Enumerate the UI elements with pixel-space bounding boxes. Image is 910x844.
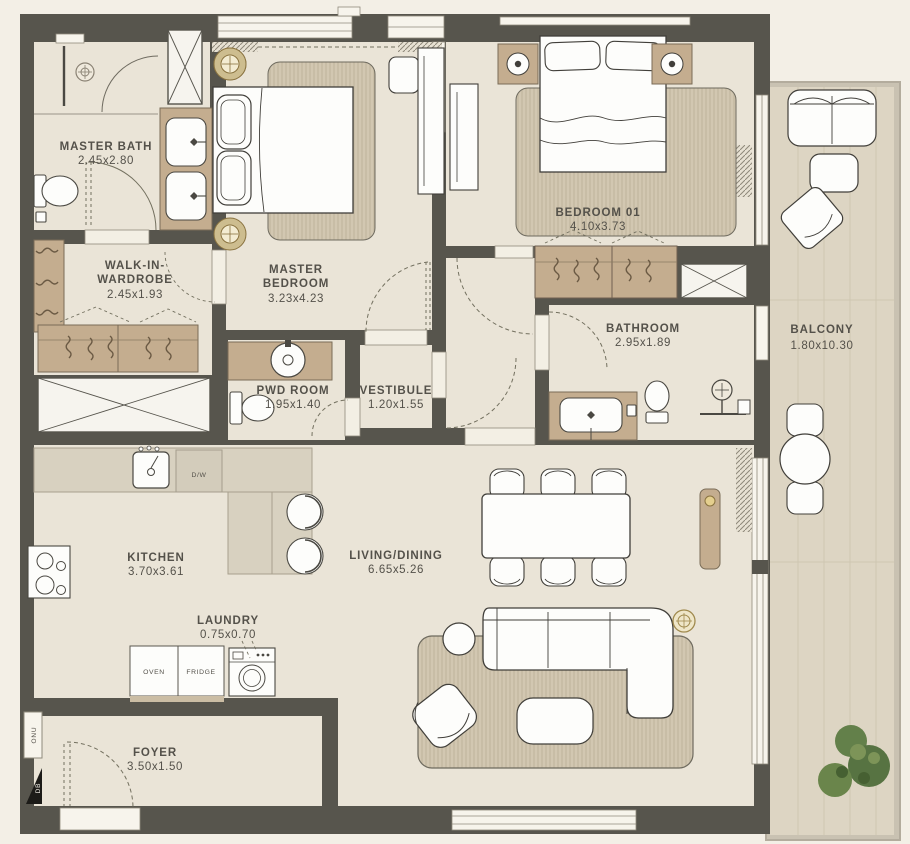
dining-table	[482, 494, 630, 558]
floor-plan-svg: D/W OVEN FRIDGE	[0, 0, 910, 844]
bistro-table-icon	[780, 434, 830, 484]
pwd-door-threshold	[345, 398, 360, 436]
sink-icon	[166, 172, 206, 220]
dining-set	[482, 469, 630, 586]
label-walk-in-2: WARDROBE	[97, 274, 173, 286]
dresser-icon	[418, 48, 444, 194]
master-bedroom-door-threshold	[365, 330, 427, 345]
dims-living-dining: 6.65x5.26	[368, 564, 424, 576]
label-balcony: BALCONY	[790, 324, 853, 336]
label-kitchen: KITCHEN	[127, 552, 184, 564]
curtain-hatch-bedroom01	[736, 145, 752, 197]
master-bath-door-threshold	[85, 230, 149, 244]
pillow-icon	[217, 95, 251, 149]
master-bedroom-window	[218, 16, 352, 38]
wardrobe-door-threshold	[212, 250, 226, 304]
label-living-dining: LIVING/DINING	[349, 550, 442, 562]
hall-living-threshold	[465, 428, 535, 445]
shaft-left	[38, 378, 210, 432]
oven-label: OVEN	[143, 669, 165, 676]
bathroom-window	[756, 306, 768, 360]
nightstand-icon	[652, 44, 692, 84]
foyer-wall-stub	[322, 698, 338, 810]
bistro-set	[780, 404, 830, 514]
coffee-table-icon	[517, 698, 593, 744]
sideboard-icon	[700, 489, 720, 569]
label-vestibule: VESTIBULE	[360, 385, 433, 397]
dims-balcony: 1.80x10.30	[791, 340, 854, 352]
bedroom-01-top-window	[500, 17, 690, 25]
dims-walk-in: 2.45x1.93	[107, 289, 163, 301]
bed-icon	[213, 87, 353, 213]
pillow-icon	[217, 151, 251, 205]
db-label: DB	[35, 783, 42, 794]
dims-vestibule: 1.20x1.55	[368, 399, 424, 411]
dims-bedroom-01: 4.10x3.73	[570, 221, 626, 233]
bistro-chair-icon	[787, 482, 823, 514]
ac-duct	[338, 7, 360, 16]
dims-bathroom: 2.95x1.89	[615, 337, 671, 349]
dims-foyer: 3.50x1.50	[127, 761, 183, 773]
dishwasher-label: D/W	[191, 472, 206, 479]
dims-pwd-room: 1.95x1.40	[265, 399, 321, 411]
hall-floor	[446, 258, 535, 428]
vestibule-door-threshold	[432, 352, 446, 398]
outdoor-table-icon	[810, 154, 858, 192]
shaft-bedroom01	[681, 264, 747, 298]
nightstand-icon	[214, 48, 246, 80]
kitchen-counter	[34, 448, 312, 492]
washing-machine-icon	[229, 648, 275, 696]
pillow-icon	[545, 41, 601, 71]
bench-icon	[389, 57, 419, 93]
fridge-label: FRIDGE	[186, 669, 215, 676]
slider-mullion	[752, 560, 768, 574]
dims-master-bedroom: 3.23x4.23	[268, 293, 324, 305]
label-pwd-room: PWD ROOM	[257, 385, 330, 397]
balcony-slider	[752, 458, 768, 764]
sink-icon	[166, 118, 206, 166]
vanity	[160, 108, 212, 230]
label-foyer: FOYER	[133, 747, 177, 759]
bar-stool-icon	[287, 538, 323, 574]
onu-box: ONU	[24, 712, 42, 758]
entry-door-threshold	[60, 808, 140, 830]
bedroom-01-door-threshold	[495, 246, 533, 258]
bistro-chair-icon	[787, 404, 823, 436]
nightstand-icon	[498, 44, 538, 84]
oven-fridge-units: OVEN FRIDGE	[130, 646, 224, 702]
dims-master-bath: 2.45x2.80	[78, 155, 134, 167]
label-master-bedroom-2: BEDROOM	[263, 278, 329, 290]
nightstand-icon	[214, 218, 246, 250]
label-master-bath: MASTER BATH	[60, 141, 153, 153]
bed-icon	[540, 36, 666, 172]
curtain-hatch-living	[736, 448, 752, 532]
label-laundry: LAUNDRY	[197, 615, 259, 627]
outdoor-sofa-icon	[788, 90, 876, 146]
label-master-bedroom-1: MASTER	[269, 264, 323, 276]
desk-icon	[450, 84, 478, 190]
floor-plan: D/W OVEN FRIDGE	[0, 0, 910, 844]
shower-drain-icon	[76, 63, 94, 81]
bath-window	[56, 34, 84, 43]
dishwasher: D/W	[176, 450, 222, 492]
side-table-icon	[443, 623, 475, 655]
ceiling-light-icon	[673, 610, 695, 632]
label-bathroom: BATHROOM	[606, 323, 680, 335]
shaft-top	[168, 30, 202, 104]
living-bottom-window	[452, 810, 636, 830]
wardrobe-unit-left	[34, 240, 64, 332]
kitchen-sink-icon	[133, 446, 169, 488]
dims-laundry: 0.75x0.70	[200, 629, 256, 641]
label-bedroom-01: BEDROOM 01	[555, 207, 640, 219]
cooktop-icon	[28, 546, 70, 598]
dims-kitchen: 3.70x3.61	[128, 566, 184, 578]
label-walk-in-1: WALK-IN-	[105, 260, 165, 272]
onu-label: ONU	[31, 727, 38, 744]
bar-stool-icon	[287, 494, 323, 530]
dining-chairs-bottom	[490, 556, 626, 586]
bathroom-door-threshold	[535, 315, 549, 370]
